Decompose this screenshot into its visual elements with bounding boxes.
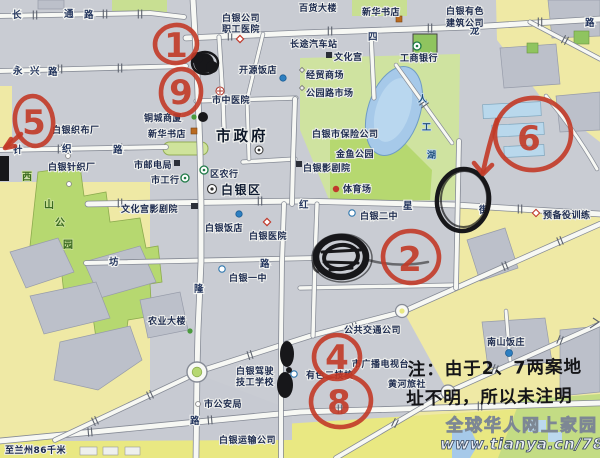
poi-label: 区农行 [210, 168, 239, 180]
school-icon [219, 266, 225, 272]
note-line-1: 注：由于2、7两案地 [408, 356, 583, 380]
road-label: 红 [299, 199, 309, 211]
school-icon [349, 210, 355, 216]
margin-note-lanzhou: 至兰州86千米 [5, 444, 67, 456]
poi-label: 市公安局 [204, 398, 242, 410]
road-label: 通 [64, 9, 74, 20]
case-number-9: 9 [169, 73, 193, 113]
cinema-icon [191, 203, 198, 209]
poi-label: 公共交通公司 [344, 324, 401, 336]
black-dot [198, 112, 208, 122]
road-label: 长 [12, 9, 22, 21]
culture-palace-icon [326, 52, 332, 58]
watermark-slogan: 全球华人网上家园 [445, 415, 598, 436]
bookstore-icon [191, 128, 197, 134]
poi-label: 经贸商场 [306, 69, 344, 81]
poi-label: 市邮电局 [134, 159, 172, 171]
map-canvas: 长 通 路 永 兴 路 四 龙 路 针 织 路 红 星 街 坊 路 隆 路 人 … [0, 0, 600, 458]
poi-label: 文化宫影剧院 [120, 203, 178, 215]
park-label: 西 [22, 171, 32, 183]
poi-label: 白银针织厂 [48, 161, 96, 173]
district-seal-icon [208, 185, 217, 194]
poi-label: 金鱼公园 [335, 148, 374, 160]
poi-label: 技工学校 [236, 376, 275, 388]
police-icon [196, 402, 201, 407]
mall-icon [191, 114, 196, 119]
poi-label: 白银影剧院 [303, 162, 351, 174]
poi-label: 预备役训练 [543, 209, 591, 221]
map-screenshot: 长 通 路 永 兴 路 四 龙 路 针 织 路 红 星 街 坊 路 隆 路 人 … [0, 0, 600, 458]
poi-label: 文化宫 [333, 51, 363, 63]
road-label: 路 [260, 258, 270, 270]
case-number-5: 5 [22, 103, 46, 143]
case-number-4: 4 [325, 338, 349, 378]
roundabout-main [187, 362, 207, 382]
watermark: 全球华人网上家园 www.tianya.cn/78140653 [440, 415, 600, 453]
poi-label: 白银驾驶 [236, 365, 275, 377]
poi-label: 职工医院 [222, 23, 260, 35]
park-label: 山 [44, 198, 54, 211]
note-line-2: 址不明，所以未注明 [406, 386, 573, 410]
hotel-icon [236, 211, 242, 217]
road-label: 路 [585, 17, 595, 29]
park-label: 公 [55, 217, 65, 229]
poi-label: 体育场 [343, 183, 372, 195]
watermark-url: www.tianya.cn/78140653 [440, 435, 600, 453]
poi-label: 农业大楼 [147, 315, 186, 327]
road-label: 路 [48, 66, 58, 78]
hotel-icon [280, 75, 286, 81]
poi-label: 白银公司 [222, 12, 260, 24]
cinema-icon [296, 161, 302, 167]
government-icon [255, 146, 263, 154]
case-number-1: 1 [164, 26, 188, 66]
building-icon [187, 328, 192, 333]
park-label: 园 [63, 239, 73, 251]
poi-label-district: 白银区 [221, 182, 262, 197]
road-v-455 [456, 141, 459, 288]
road-h-287 [300, 285, 456, 288]
poi-label: 白银有色 [446, 5, 484, 17]
poi-label: 白银运输公司 [219, 434, 276, 446]
poi-label: 长途汽车站 [290, 38, 338, 50]
case-number-6: 6 [517, 119, 541, 159]
poi-label: 新华书店 [148, 128, 186, 140]
poi-label: 白银一中 [229, 272, 267, 284]
poi-label-city-government: 市政府 [216, 127, 269, 145]
stadium-icon [333, 186, 339, 192]
poi-label: 白银饭店 [205, 222, 243, 234]
road-v-282 [281, 204, 284, 458]
lake-label: 工 [422, 122, 431, 133]
roundabout-mid [396, 305, 409, 318]
green-top-strip1 [112, 0, 167, 12]
road-label: 路 [84, 9, 94, 21]
poi-label: 白银织布厂 [52, 124, 100, 136]
lake-label: 湖 [427, 149, 436, 161]
road-label: 织 [62, 143, 72, 155]
poi-label: 市工行 [151, 174, 180, 186]
road-zhenzhi-lu [0, 147, 166, 150]
road-v-293 [292, 99, 295, 204]
post-office-icon [174, 160, 180, 166]
poi-label: 白银市保险公司 [312, 128, 379, 140]
case-number-8: 8 [327, 383, 351, 423]
road-label: 星 [403, 201, 413, 212]
road-label: 永 [12, 65, 23, 77]
bank-icon [200, 166, 208, 174]
poi-label: 百货大楼 [299, 2, 337, 14]
road-label: 兴 [30, 65, 40, 77]
road-label: 路 [113, 144, 123, 156]
poi-label: 建筑公司 [446, 17, 484, 29]
poi-label: 工商银行 [400, 52, 438, 64]
road-label: 四 [368, 32, 378, 43]
poi-label: 白银二中 [360, 210, 398, 222]
case-number-2: 2 [398, 240, 422, 280]
poi-label: 公园路市场 [306, 87, 354, 99]
poi-label: 开源饭店 [239, 64, 277, 76]
tcm-hospital-icon [216, 87, 224, 95]
school-icon [291, 371, 297, 377]
factory-icon [67, 182, 72, 187]
road-label: 隆 [194, 283, 204, 295]
road-v-372 [371, 34, 374, 98]
road-label: 路 [190, 415, 200, 427]
road-label: 坊 [109, 256, 119, 268]
poi-label: 新华书店 [362, 6, 400, 18]
restaurant-icon [506, 350, 513, 357]
poi-label: 市中医院 [212, 94, 250, 106]
lake-label: 人 [417, 93, 428, 105]
bank-icon [181, 174, 189, 182]
poi-label: 白银医院 [249, 230, 287, 242]
black-edge-mark [0, 156, 9, 181]
poi-label: 南山饭庄 [487, 336, 525, 348]
bank-icon [413, 42, 421, 50]
